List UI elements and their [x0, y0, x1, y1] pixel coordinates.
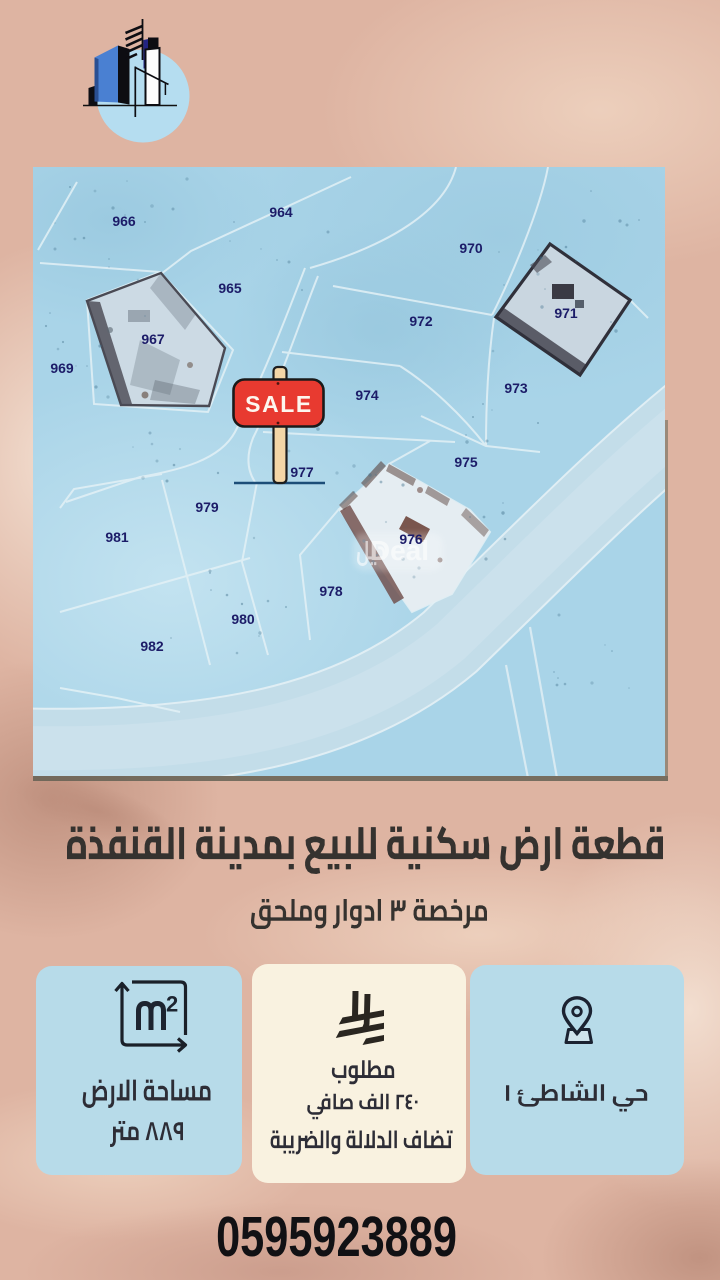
svg-text:981: 981 [105, 529, 129, 545]
svg-text:0595923889: 0595923889 [216, 1204, 457, 1268]
svg-text:975: 975 [454, 454, 478, 470]
svg-text:974: 974 [355, 387, 379, 403]
svg-text:976: 976 [399, 531, 423, 547]
svg-text:972: 972 [409, 313, 433, 329]
svg-text:965: 965 [218, 280, 242, 296]
svg-text:978: 978 [319, 583, 343, 599]
svg-text:970: 970 [459, 240, 483, 256]
svg-text:977: 977 [290, 464, 314, 480]
svg-text:973: 973 [504, 380, 528, 396]
svg-text:971: 971 [554, 305, 578, 321]
svg-text:967: 967 [141, 331, 165, 347]
svg-text:979: 979 [195, 499, 219, 515]
svg-text:969: 969 [50, 360, 74, 376]
svg-text:982: 982 [140, 638, 164, 654]
svg-text:964: 964 [269, 204, 293, 220]
svg-text:SALE: SALE [245, 391, 313, 417]
svg-text:980: 980 [231, 611, 255, 627]
svg-text:966: 966 [112, 213, 136, 229]
svg-text:2: 2 [166, 992, 178, 1017]
